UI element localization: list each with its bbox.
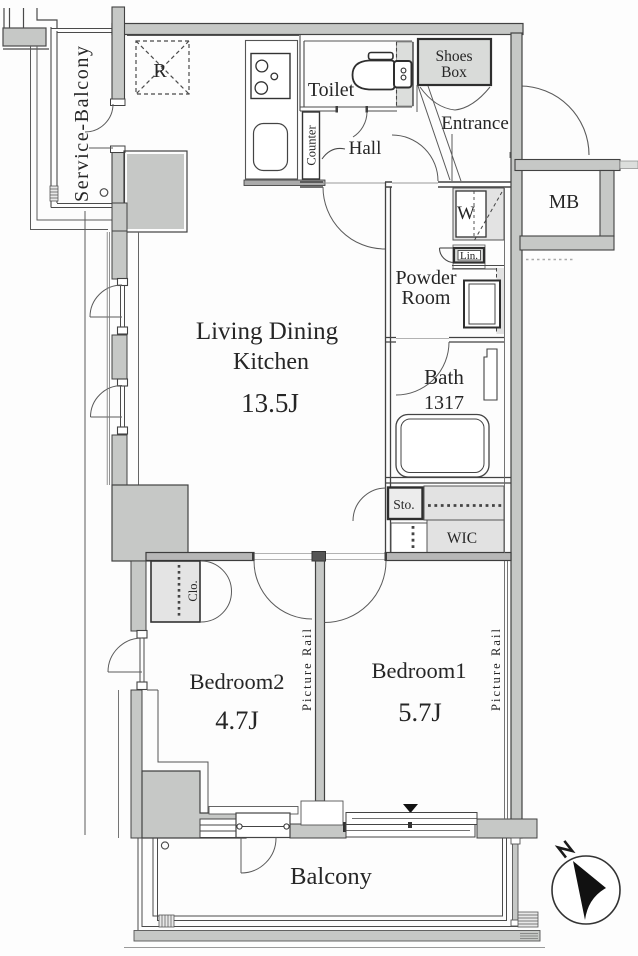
svg-text:W: W [457, 203, 475, 224]
svg-text:Shoes: Shoes [435, 48, 472, 65]
svg-text:Entrance: Entrance [441, 113, 509, 134]
svg-text:Bedroom2: Bedroom2 [190, 669, 285, 694]
svg-text:Room: Room [402, 287, 451, 309]
svg-text:Lin.: Lin. [460, 250, 478, 262]
svg-text:R: R [153, 60, 167, 82]
svg-text:Toilet: Toilet [308, 79, 355, 101]
svg-text:Balcony: Balcony [290, 863, 372, 890]
svg-text:MB: MB [549, 192, 579, 213]
svg-text:5.7J: 5.7J [398, 697, 441, 727]
svg-text:13.5J: 13.5J [241, 388, 299, 418]
svg-text:1317: 1317 [424, 392, 464, 414]
svg-text:Service-Balcony: Service-Balcony [71, 46, 93, 202]
svg-text:Picture Rail: Picture Rail [489, 628, 503, 711]
svg-text:Bath: Bath [424, 365, 464, 389]
svg-text:Counter: Counter [305, 125, 319, 166]
svg-text:Picture Rail: Picture Rail [300, 628, 314, 711]
svg-text:Box: Box [441, 64, 467, 81]
svg-text:Hall: Hall [349, 138, 382, 159]
svg-text:Kitchen: Kitchen [233, 349, 309, 375]
svg-text:Clo.: Clo. [186, 580, 200, 601]
svg-text:Bedroom1: Bedroom1 [372, 658, 467, 683]
svg-text:WIC: WIC [447, 530, 477, 547]
svg-text:4.7J: 4.7J [215, 705, 258, 735]
svg-text:Powder: Powder [395, 267, 456, 289]
svg-text:Living Dining: Living Dining [196, 318, 339, 345]
svg-text:Sto.: Sto. [393, 497, 414, 512]
